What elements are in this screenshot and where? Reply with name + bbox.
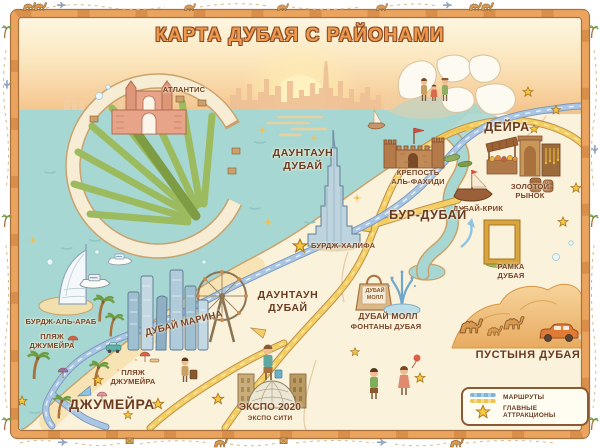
dubai-map-page: КАРТА ДУБАЯ С РАЙОНАМИ АТЛАНТИС ДЕЙРА ЗО… [0,0,600,448]
map-illustration [0,0,600,448]
district-downtown-2: ДАУНТАУН ДУБАЙ [256,289,320,315]
route-lines-icon [469,393,497,403]
district-desert: ПУСТЫНЯ ДУБАЯ [476,349,581,363]
label-dubai-frame: РАМКА ДУБАЯ [489,262,533,281]
label-dubai-mall: ДУБАЙ МОЛЛ [358,311,417,322]
label-jumeirah-beach-2: ПЛЯЖ ДЖУМЕЙРА [107,368,159,387]
legend-attractions-label: ГЛАВНЫЕ АТТРАКЦИОНЫ [503,405,581,419]
district-deira: ДЕЙРА [484,120,530,136]
label-burj-al-arab: БУРДЖ-АЛЬ-АРАБ [25,317,96,326]
legend: МАРШРУТЫ ГЛАВНЫЕ АТТРАКЦИОНЫ [461,387,589,426]
star-icon [469,404,497,420]
district-bur-dubai: БУР-ДУБАЙ [389,208,467,224]
legend-routes-row: МАРШРУТЫ [469,393,581,403]
label-gold-market: ЗОЛОТОЙ РЫНОК [505,182,555,201]
legend-routes-label: МАРШРУТЫ [503,394,544,401]
legend-attractions-row: ГЛАВНЫЕ АТТРАКЦИОНЫ [469,404,581,420]
label-jumeirah-beach-1: ПЛЯЖ ДЖУМЕЙРА [26,332,78,351]
label-dubai-fountains: ФОНТАНЫ ДУБАЯ [351,322,422,331]
district-downtown-1: ДАУНТАУН ДУБАЙ [271,147,335,173]
district-jumeirah: ДЖУМЕЙРА [69,396,155,414]
label-atlantis: АТЛАНТИС [163,85,206,94]
label-burj-khalifa: БУРДЖ-ХАЛИФА [311,241,375,250]
mall-bag-label: ДУБАЙ МОЛЛ [362,288,388,302]
label-al-fahidi-fort: КРЕПОСТЬ АЛЬ-ФАХИДИ [387,168,449,187]
map-title: КАРТА ДУБАЯ С РАЙОНАМИ [155,25,444,47]
label-expo-city: ЭКСПО СИТИ [248,415,293,423]
label-expo-2020: ЭКСПО 2020 [239,402,301,415]
